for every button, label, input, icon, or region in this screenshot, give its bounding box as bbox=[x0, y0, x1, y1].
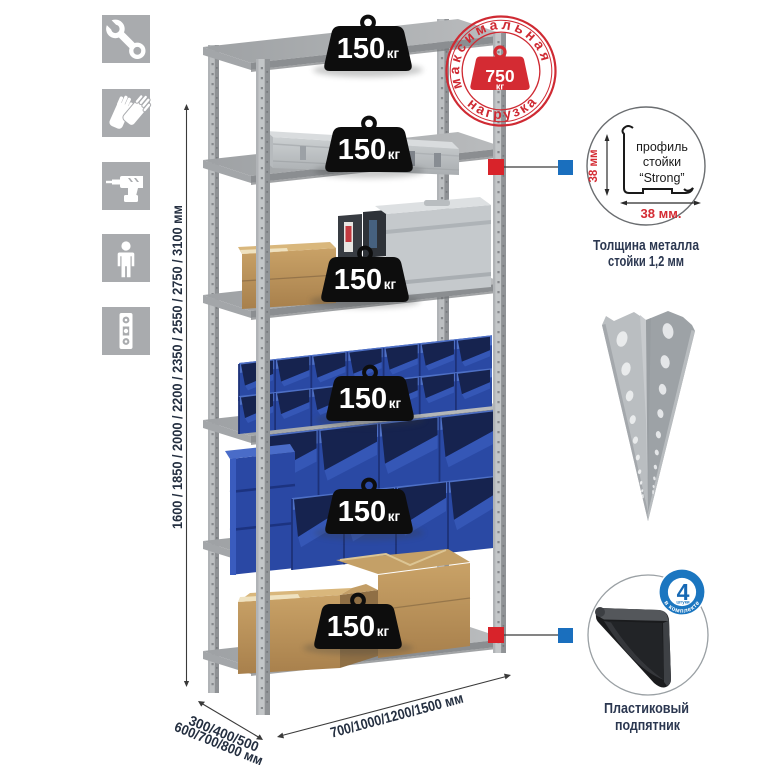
svg-text:Пластиковый: Пластиковый bbox=[604, 700, 689, 717]
svg-text:кг: кг bbox=[388, 509, 401, 524]
svg-text:стойки: стойки bbox=[643, 155, 681, 169]
svg-text:подпятник: подпятник bbox=[615, 717, 680, 734]
svg-text:150: 150 bbox=[338, 134, 386, 166]
svg-text:кг: кг bbox=[384, 277, 397, 292]
svg-text:стойки 1,2 мм: стойки 1,2 мм bbox=[608, 253, 684, 270]
svg-text:150: 150 bbox=[339, 383, 387, 415]
svg-text:профиль: профиль bbox=[636, 140, 688, 154]
svg-text:38 мм.: 38 мм. bbox=[641, 206, 682, 221]
svg-text:150: 150 bbox=[338, 496, 386, 528]
svg-text:1600 / 1850 / 2000 / 2200 / 23: 1600 / 1850 / 2000 / 2200 / 2350 / 2550 … bbox=[169, 205, 185, 529]
svg-text:кг: кг bbox=[388, 147, 401, 162]
svg-text:150: 150 bbox=[327, 611, 375, 643]
svg-text:150: 150 bbox=[334, 264, 382, 296]
svg-text:кг: кг bbox=[387, 46, 400, 61]
svg-text:штуки: штуки bbox=[676, 600, 690, 605]
svg-text:“Strong”: “Strong” bbox=[639, 171, 684, 185]
svg-text:38 мм: 38 мм bbox=[588, 149, 600, 182]
svg-text:кг: кг bbox=[496, 82, 505, 92]
svg-text:кг: кг bbox=[389, 396, 402, 411]
svg-text:150: 150 bbox=[337, 33, 385, 65]
svg-text:Толщина металла: Толщина металла bbox=[593, 237, 700, 254]
svg-text:кг: кг bbox=[377, 624, 390, 639]
